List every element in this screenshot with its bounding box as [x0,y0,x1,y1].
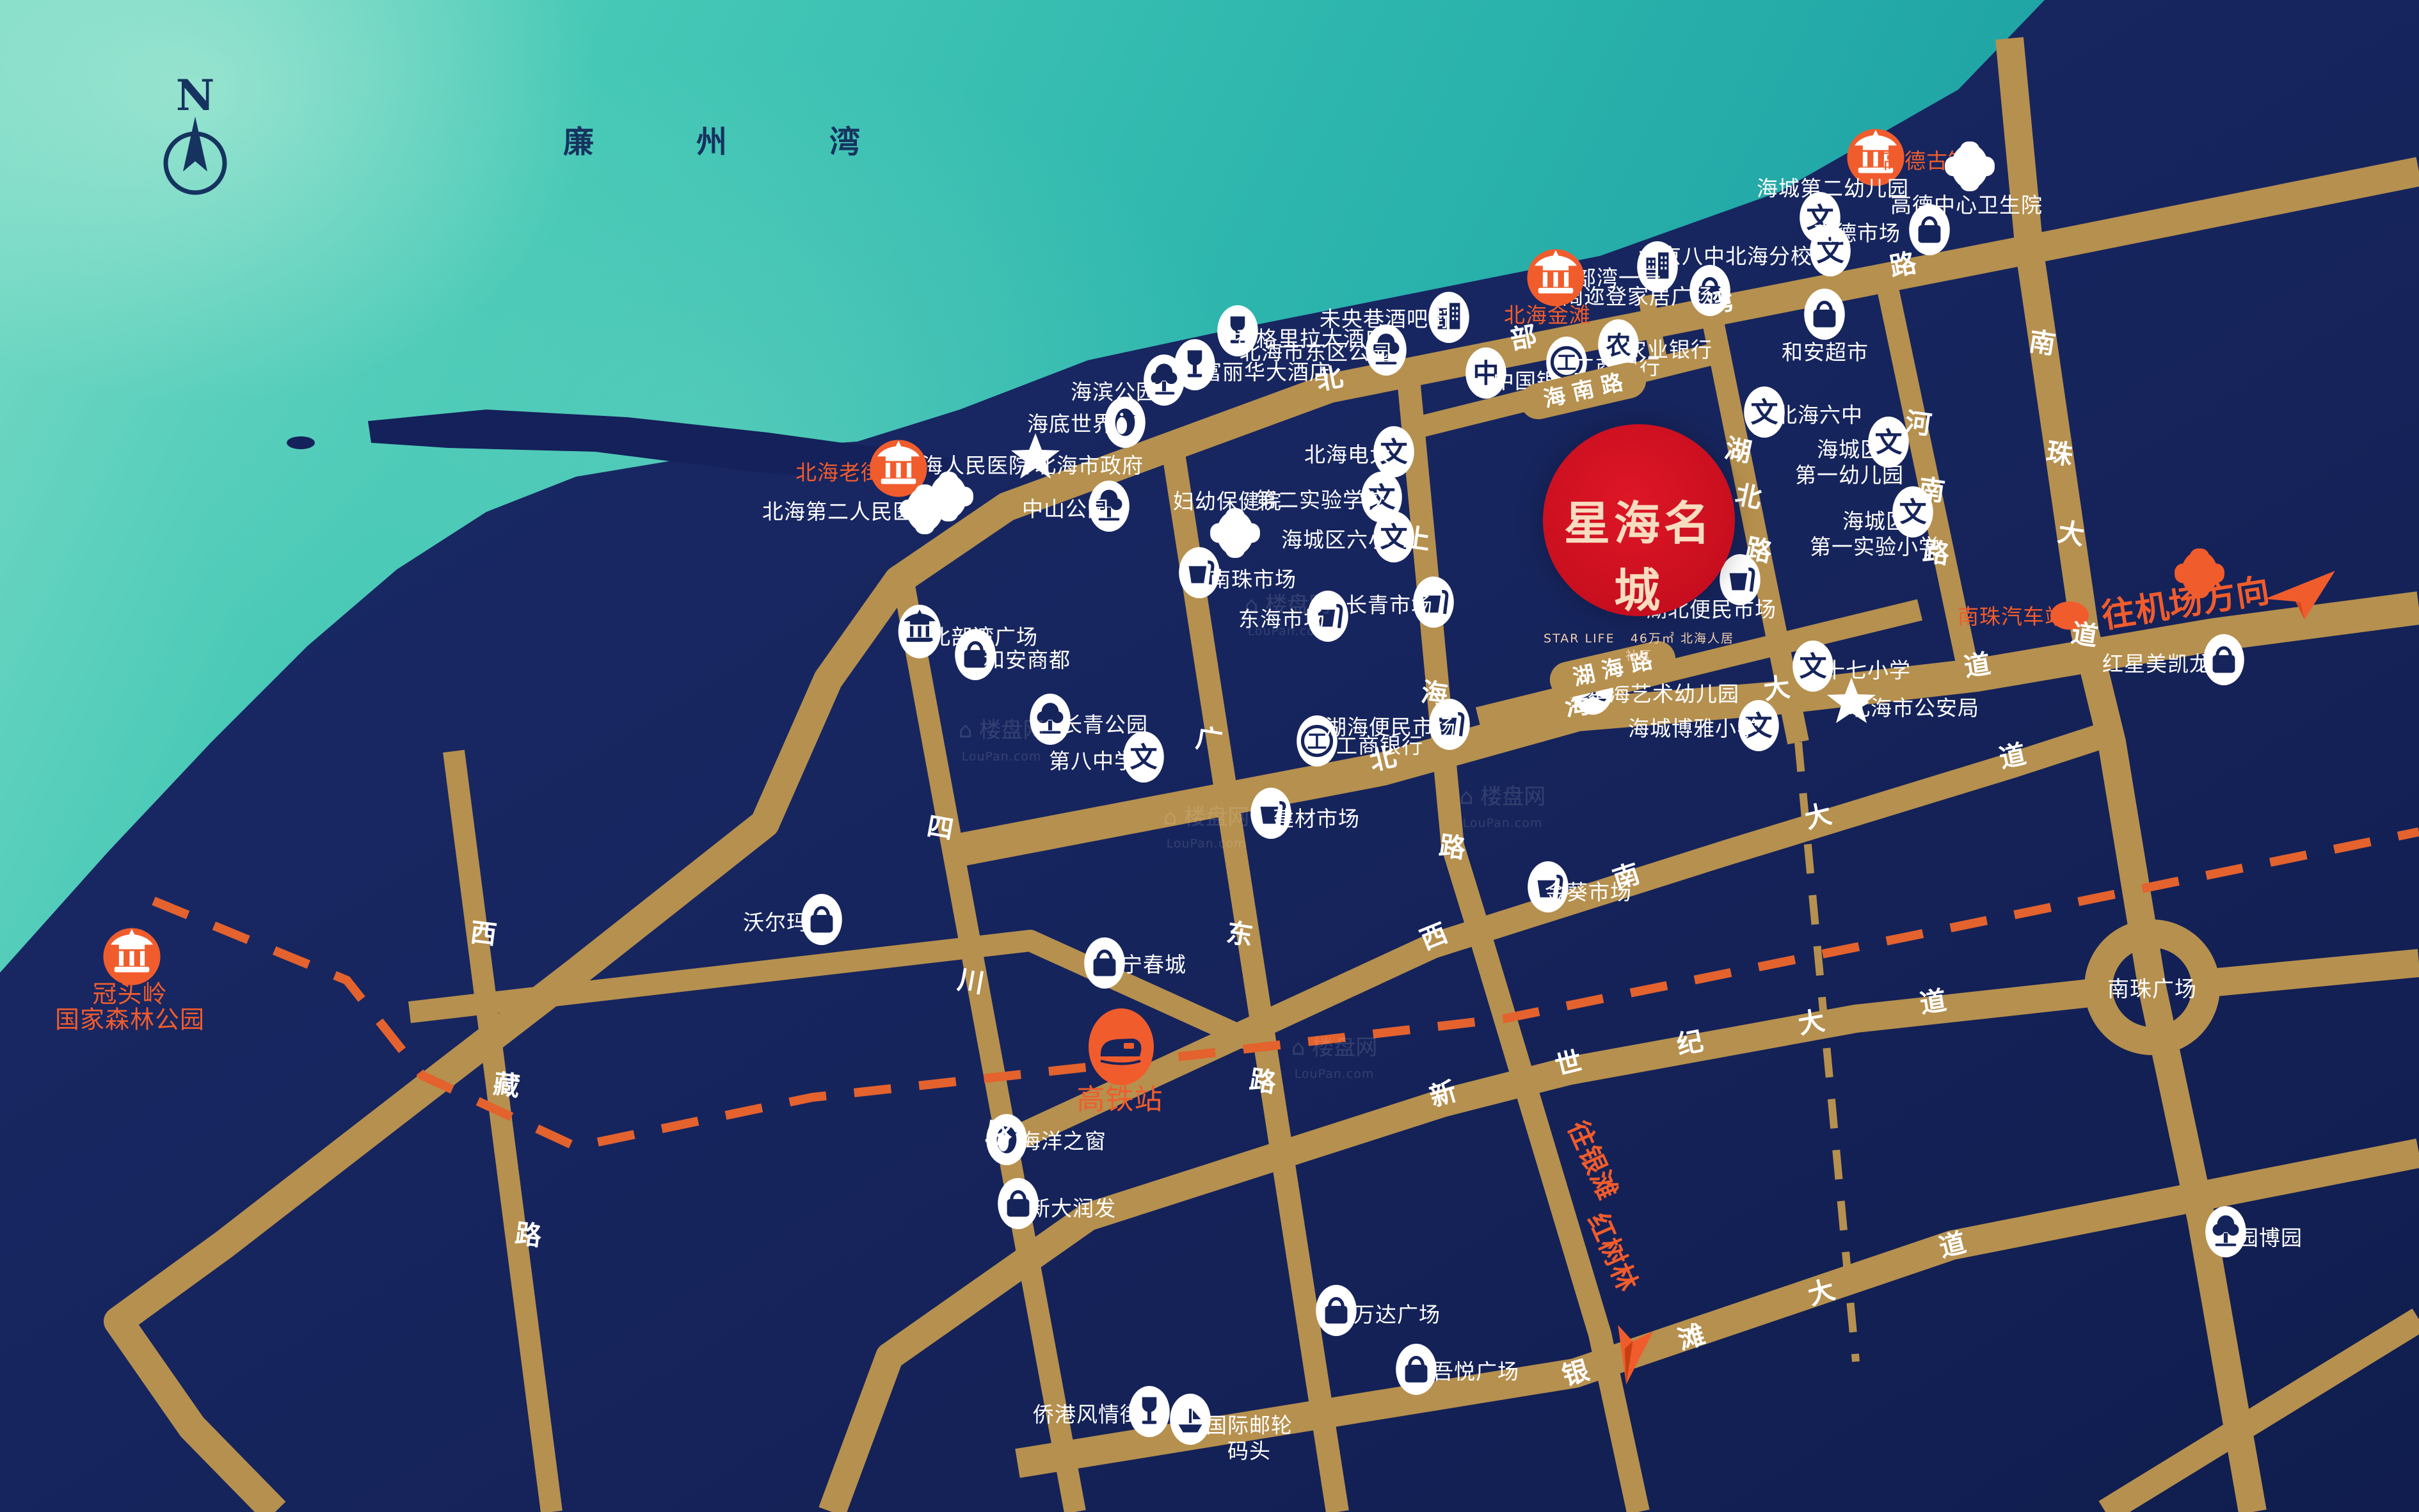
road-name-char: 河 [1903,400,1935,442]
高德市场-bag-icon [1908,203,1951,259]
bay-label: 廉州湾 [563,116,962,161]
compass: N [147,77,243,207]
poi-label-侨港风情街: 侨港风情街 [1033,1397,1142,1428]
project-logo: 星海名城 STAR LIFE 46万㎡ 北海人居社区 [1543,424,1735,616]
poi-label-吾悦广场: 吾悦广场 [1432,1355,1519,1385]
road-name-char: 路 [513,1212,544,1253]
watermark: ⌂ 楼盘网LouPan.com [959,719,1044,768]
compass-needle-icon [183,116,207,171]
poi-label-宁春城: 宁春城 [1121,948,1186,978]
road-name-char: 路 [1921,529,1952,571]
poi-label-富丽华大酒店: 富丽华大酒店 [1201,355,1331,386]
poi-label-北海六中: 北海六中 [1776,398,1863,429]
sandbar-rock [287,436,315,449]
poi-label-第八中学: 第八中学 [1049,744,1136,775]
roundabout-label: 南珠广场 [2107,972,2197,1003]
poi-label-红星美凯龙: 红星美凯龙 [2102,647,2211,678]
road-name-char: 海 [1419,670,1451,712]
poi-label-北海老街: 北海老街 [795,456,882,486]
project-subtitle-en: STAR LIFE [1544,632,1615,646]
poi-label-北海第二人民医院: 北海第二人民医院 [762,495,936,525]
svg-text:文: 文 [1750,397,1778,429]
project-name: 星海名城 [1543,486,1735,620]
poi-label-海城博雅小学: 海城博雅小学 [1628,712,1759,742]
poi-label-农业银行: 农业银行 [1625,333,1712,363]
poi-label-北海电大: 北海电大 [1304,438,1391,468]
宁春城-bag-icon [1083,937,1126,992]
poi-label-第二实验学校: 第二实验学校 [1256,483,1386,514]
road-name-char: 南 [1917,466,1948,508]
poi-label-海城区第一幼儿园: 第一幼儿园 [1795,458,1904,489]
poi-label-南珠市场: 南珠市场 [1209,562,1297,593]
poi-label-国际邮轮码头: 码头 [1227,1434,1271,1465]
poi-label-高德市场: 高德市场 [1814,216,1901,247]
poi-label-和安商都: 和安商都 [984,643,1071,674]
svg-text:工: 工 [1307,730,1327,753]
poi-label-海洋之窗: 海洋之窗 [1019,1124,1106,1155]
watermark: ⌂ 楼盘网LouPan.com [1245,594,1330,643]
poi-label-长青市场: 长青市场 [1346,588,1433,619]
吾悦广场-bag-icon [1395,1343,1437,1398]
project-subtitle: STAR LIFE 46万㎡ 北海人居社区 [1543,629,1735,664]
watermark: ⌂ 楼盘网LouPan.com [1291,1037,1377,1086]
road-name-char: 西 [468,911,499,952]
watermark: ⌂ 楼盘网LouPan.com [1163,806,1249,855]
svg-text:文: 文 [1799,651,1826,683]
poi-label-海城区第一实验小学: 第一实验小学 [1810,530,1940,561]
road-name-char: 上 [1402,515,1433,557]
poi-label-南珠汽车站: 南珠汽车站 [1958,600,2066,630]
poi-label-沃尔玛: 沃尔玛 [743,905,808,936]
poi-label-高铁站: 高铁站 [1077,1076,1163,1117]
poi-label-园博园: 园博园 [2237,1221,2303,1252]
poi-label-冠头岭国家森林公园: 国家森林公园 [55,1000,205,1035]
poi-label-建材市场: 建材市场 [1273,802,1360,832]
万达广场-bag-icon [1315,1284,1357,1339]
poi-label-新大润发: 新大润发 [1029,1191,1116,1222]
project-subtitle-cn: 46万㎡ 北海人居社区 [1625,632,1734,663]
poi-label-北海市政府: 北海市政府 [1035,449,1144,479]
watermark: ⌂ 楼盘网LouPan.com [1460,786,1545,835]
poi-label-海城第二幼儿园: 海城第二幼儿园 [1757,171,1909,202]
poi-label-中山公园: 中山公园 [1022,492,1109,523]
compass-n-label: N [176,77,214,120]
poi-label-海城区六小: 海城区六小 [1281,523,1390,553]
poi-label-和安超市: 和安超市 [1782,335,1869,366]
road-name-char: 藏 [491,1062,522,1104]
location-map: 高德古镇高德中心卫生院文海城第二幼儿园文北京八中北海分校高德市场和安超市文北海六… [0,0,2419,1512]
road-name-char: 大 [1761,665,1792,707]
poi-label-北海市公安局: 北海市公安局 [1849,691,1979,722]
airplane-icon [2265,569,2339,626]
poi-label-万达广场: 万达广场 [1353,1298,1441,1328]
